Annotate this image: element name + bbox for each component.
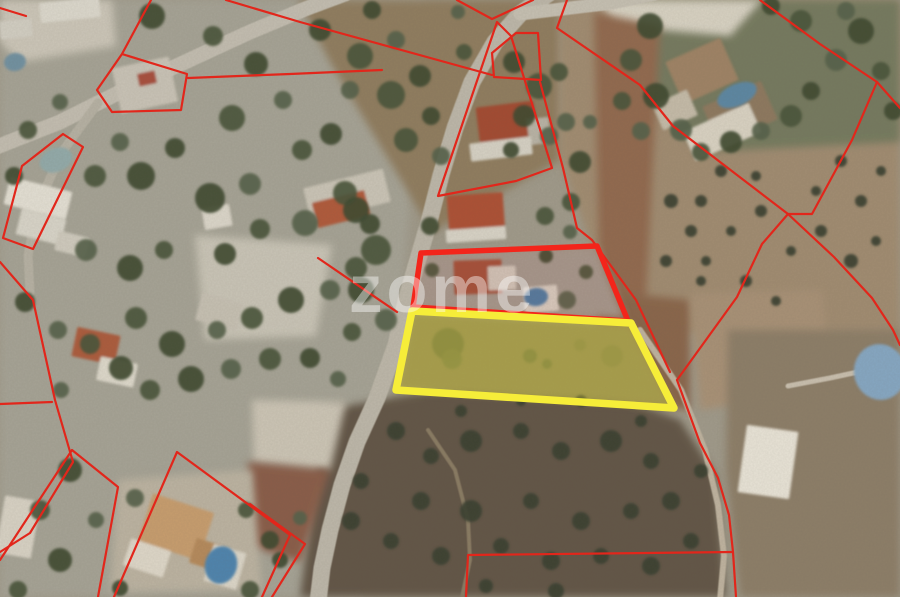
satellite-map: zome bbox=[0, 0, 900, 597]
parcel-highlight-yellow bbox=[396, 311, 674, 408]
aerial-imagery bbox=[0, 0, 900, 597]
